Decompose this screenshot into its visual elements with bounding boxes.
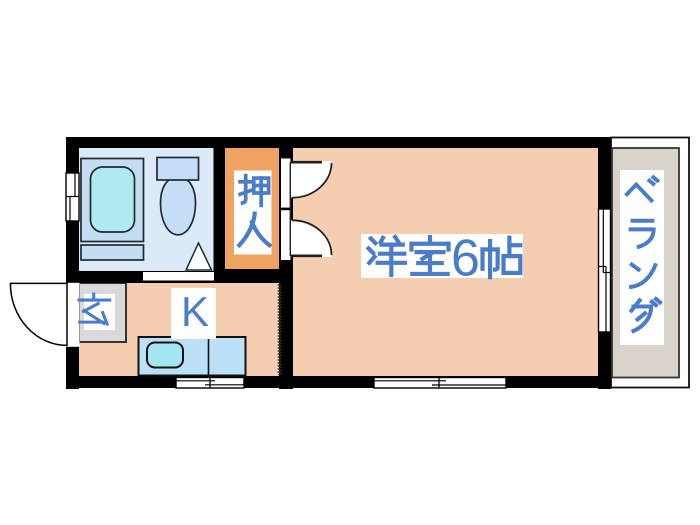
- svg-text:K: K: [181, 288, 209, 335]
- svg-text:6: 6: [451, 230, 480, 288]
